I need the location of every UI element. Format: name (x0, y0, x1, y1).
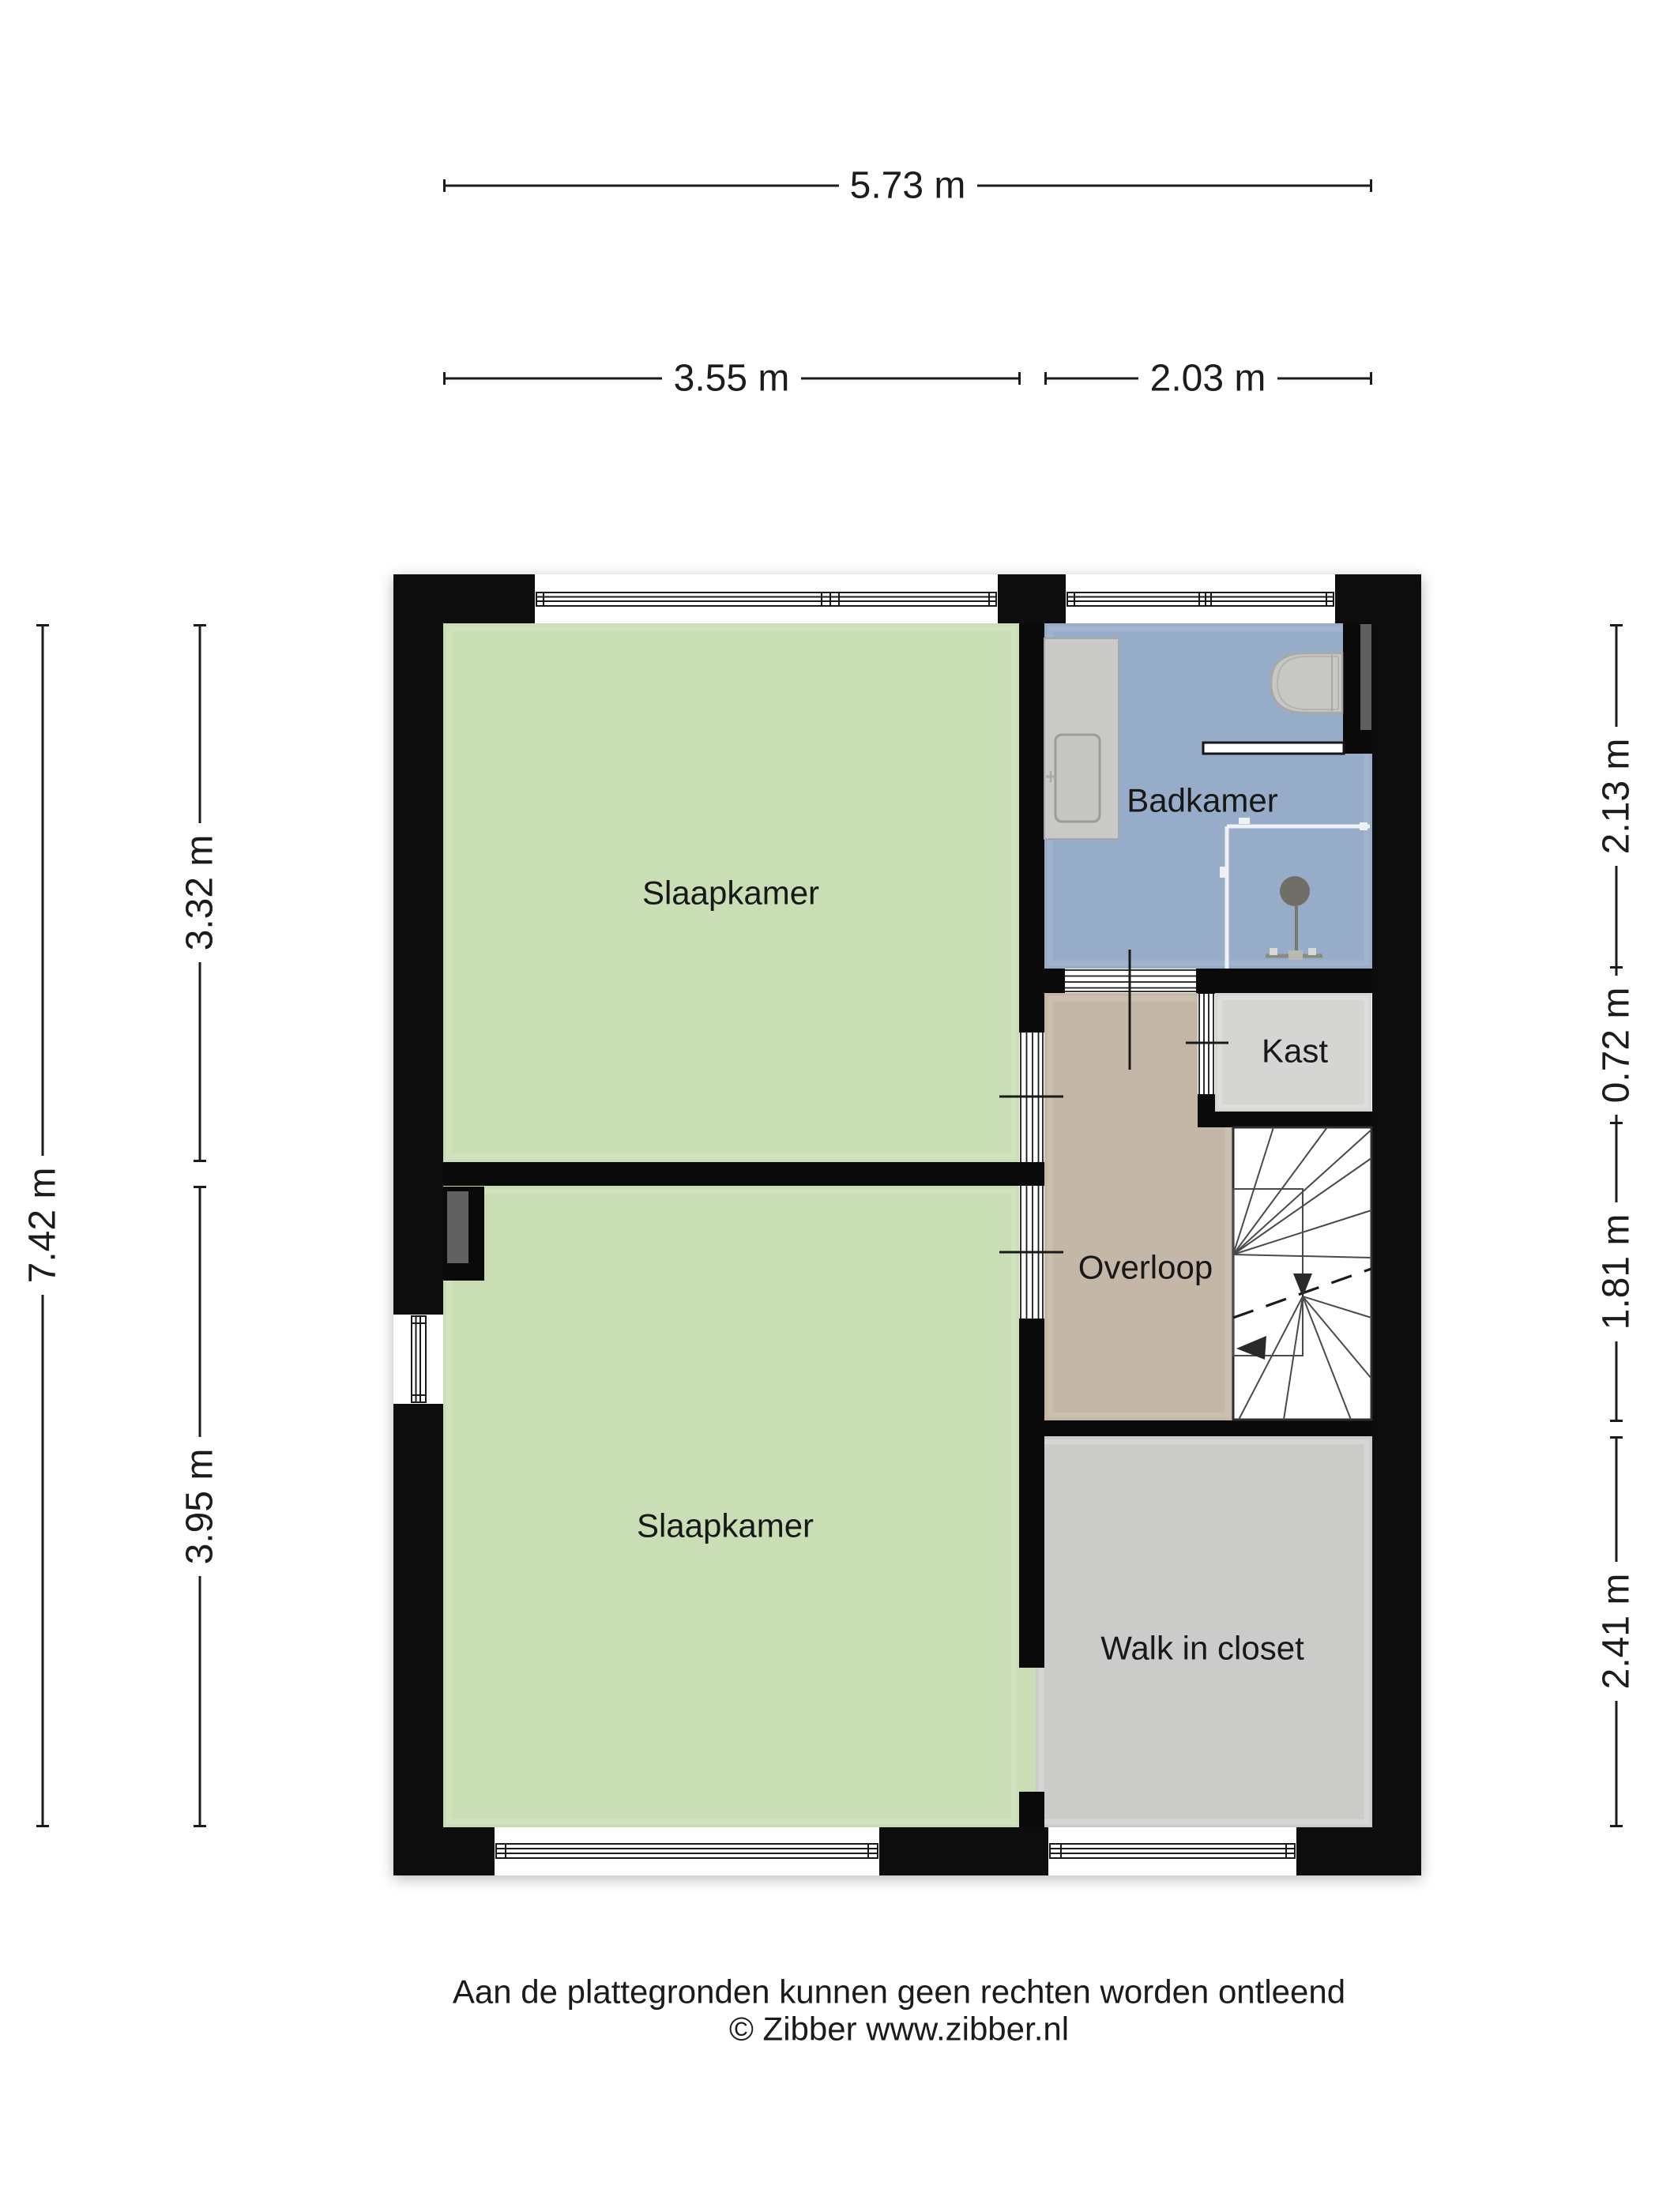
svg-text:7.42 m: 7.42 m (22, 1168, 64, 1284)
svg-text:3.95 m: 3.95 m (179, 1449, 221, 1565)
svg-text:Walk in closet: Walk in closet (1100, 1630, 1304, 1667)
svg-text:Overloop: Overloop (1078, 1249, 1213, 1286)
svg-text:2.03 m: 2.03 m (1150, 358, 1266, 400)
svg-text:2.41 m: 2.41 m (1596, 1574, 1638, 1690)
svg-text:5.73 m: 5.73 m (850, 165, 966, 207)
svg-text:Kast: Kast (1262, 1033, 1328, 1070)
svg-text:© Zibber www.zibber.nl: © Zibber www.zibber.nl (729, 2011, 1069, 2048)
svg-text:Badkamer: Badkamer (1127, 782, 1277, 819)
svg-text:2.13 m: 2.13 m (1596, 739, 1638, 855)
svg-text:3.32 m: 3.32 m (179, 835, 221, 951)
svg-text:1.81 m: 1.81 m (1596, 1214, 1638, 1330)
svg-text:3.55 m: 3.55 m (674, 358, 790, 400)
svg-text:Aan de plattegronden kunnen ge: Aan de plattegronden kunnen geen rechten… (453, 1973, 1345, 2011)
svg-text:0.72 m: 0.72 m (1596, 987, 1638, 1104)
svg-text:Slaapkamer: Slaapkamer (642, 875, 819, 912)
svg-text:Slaapkamer: Slaapkamer (637, 1507, 814, 1544)
